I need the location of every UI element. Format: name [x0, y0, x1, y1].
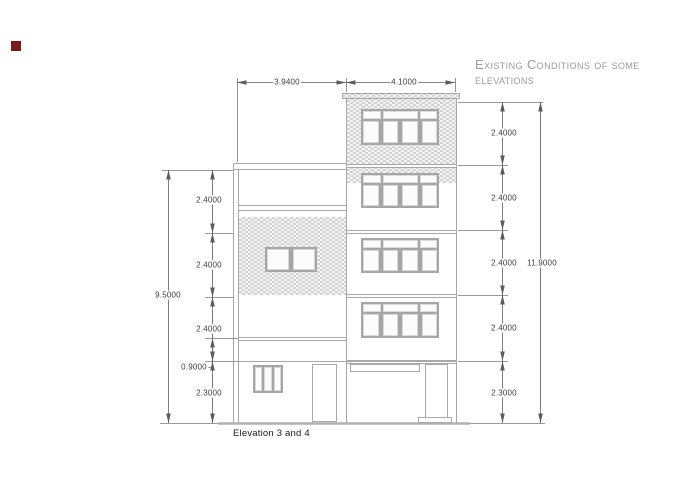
tower-window-floor3 [361, 173, 439, 208]
window-transom [363, 304, 437, 314]
dim-left-total: 9.5000 [154, 291, 182, 300]
tower-window-floor2 [361, 238, 439, 273]
dim-left-floor3: 2.4000 [195, 196, 223, 205]
right-door-threshold [418, 417, 452, 423]
window-transom [363, 240, 437, 250]
window-transom [363, 111, 437, 121]
dim-right-floor1: 2.4000 [490, 324, 518, 333]
dim-right-floor2: 2.4000 [490, 259, 518, 268]
dim-right-ground: 2.3000 [490, 389, 518, 398]
ground-floor-right-door [425, 364, 448, 418]
dim-left-ground: 2.3000 [195, 389, 223, 398]
linework-layer [0, 0, 700, 495]
dim-width-right: 4.1000 [390, 78, 418, 87]
dim-right-total: 11.9000 [526, 259, 558, 268]
dim-right-floor4: 2.4000 [490, 129, 518, 138]
window-transom [363, 175, 437, 185]
dim-right-floor3: 2.4000 [490, 194, 518, 203]
ground-floor-ribbon-window [350, 364, 420, 372]
ground-floor-left-window [253, 365, 283, 393]
dim-left-floor1: 2.4000 [195, 325, 223, 334]
dim-width-left: 3.9400 [273, 78, 301, 87]
tower-window-floor4 [361, 109, 439, 145]
drawing-label: Elevation 3 and 4 [233, 428, 310, 439]
left-building-window [265, 247, 317, 272]
ground-floor-left-door [312, 364, 337, 422]
dim-left-band: 0.9000 [180, 363, 208, 372]
tower-window-floor1 [361, 302, 439, 338]
dim-left-floor2: 2.4000 [195, 261, 223, 270]
elevation-drawing-sheet: Existing Conditions of some elevations [0, 0, 700, 495]
window-pane [363, 121, 379, 143]
